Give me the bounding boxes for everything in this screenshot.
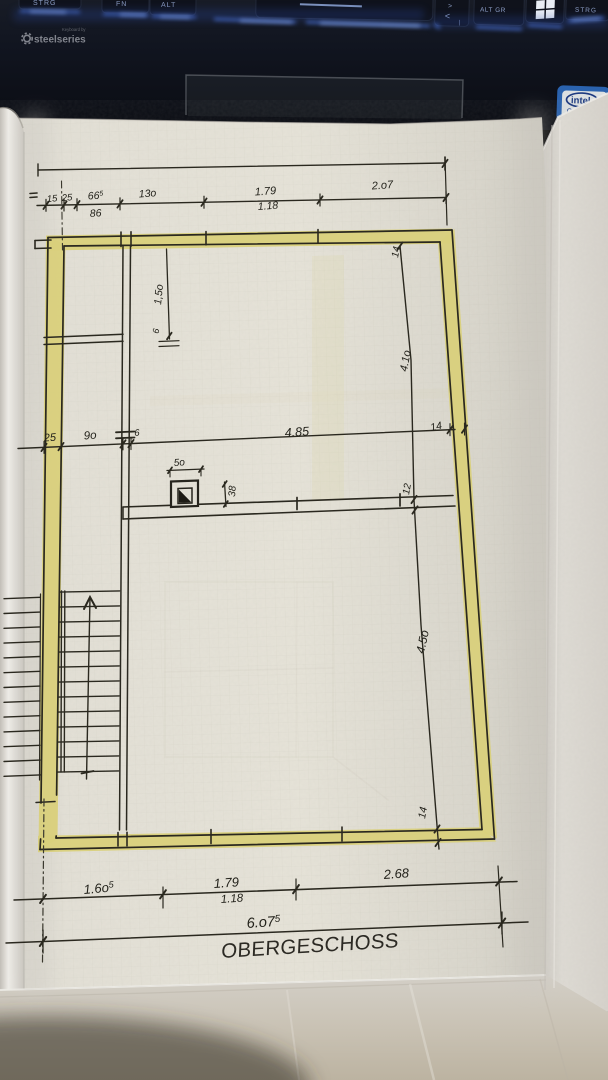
svg-text:1.18: 1.18 (220, 892, 244, 906)
svg-text:4.85: 4.85 (284, 424, 309, 440)
svg-text:FN: FN (116, 1, 127, 8)
svg-text:ALT: ALT (161, 2, 176, 9)
svg-text:5o: 5o (173, 457, 185, 469)
svg-text:steelseries: steelseries (34, 35, 86, 46)
svg-text:Keyboard by: Keyboard by (62, 27, 86, 32)
svg-text:25: 25 (42, 432, 57, 445)
svg-text:25: 25 (60, 192, 73, 204)
svg-text:9o: 9o (83, 430, 97, 443)
svg-text:86: 86 (89, 207, 102, 220)
svg-text:2.o7: 2.o7 (370, 179, 394, 193)
svg-text:1,5o: 1,5o (152, 284, 166, 306)
svg-text:1.79: 1.79 (213, 874, 239, 891)
svg-text:ALT GR: ALT GR (480, 6, 506, 14)
svg-text:2.68: 2.68 (382, 865, 410, 882)
svg-text:38: 38 (227, 485, 239, 497)
svg-text:>: > (448, 3, 452, 10)
svg-text:15: 15 (46, 193, 58, 205)
svg-text:14: 14 (416, 806, 430, 820)
svg-text:13o: 13o (138, 187, 156, 200)
svg-text:1.18: 1.18 (257, 200, 278, 213)
svg-text:STRG: STRG (575, 7, 597, 15)
svg-text:1.79: 1.79 (254, 185, 276, 198)
svg-text:STRG: STRG (33, 0, 56, 7)
